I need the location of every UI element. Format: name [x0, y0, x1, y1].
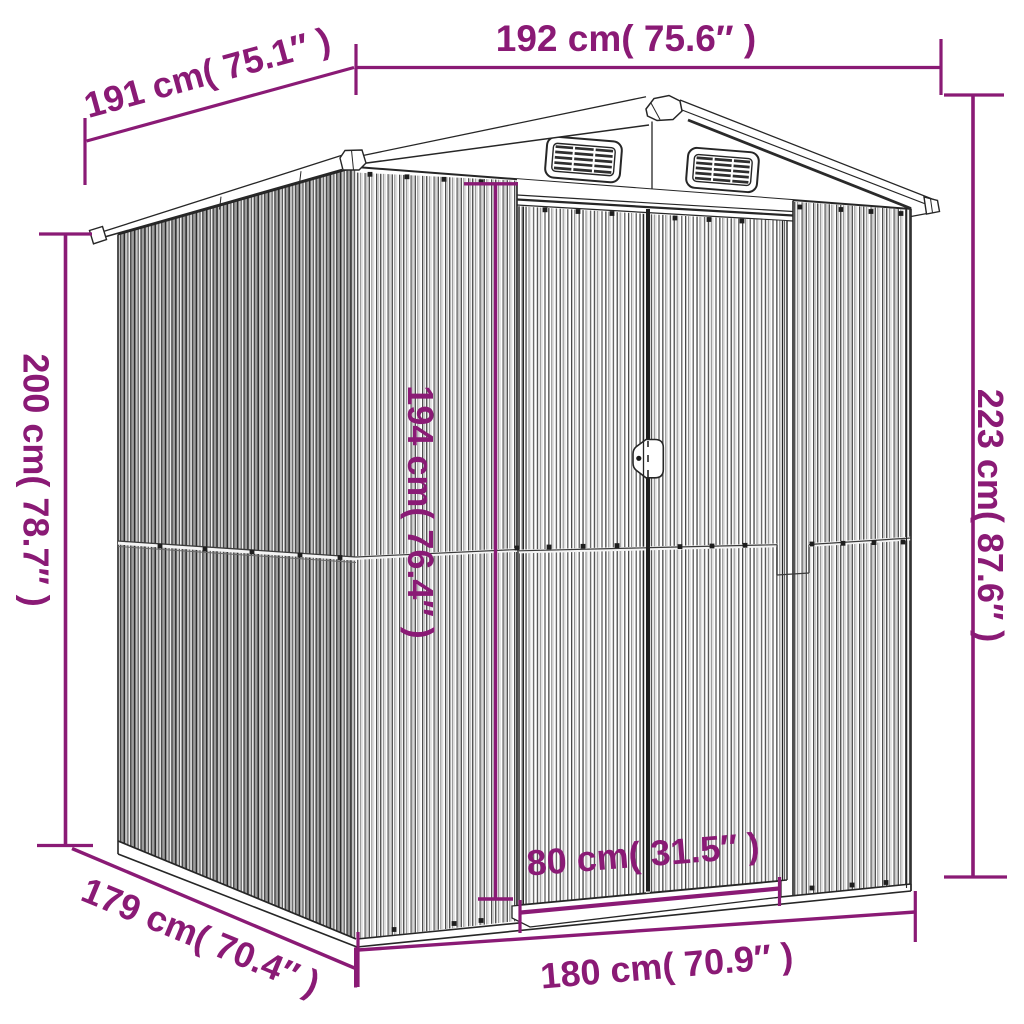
- svg-text:200 cm( 78.7″ ): 200 cm( 78.7″ ): [16, 353, 57, 606]
- svg-text:223 cm( 87.6″ ): 223 cm( 87.6″ ): [970, 389, 1011, 642]
- svg-text:192 cm( 75.6″ ): 192 cm( 75.6″ ): [496, 18, 756, 59]
- svg-text:194 cm( 76.4″ ): 194 cm( 76.4″ ): [400, 385, 441, 638]
